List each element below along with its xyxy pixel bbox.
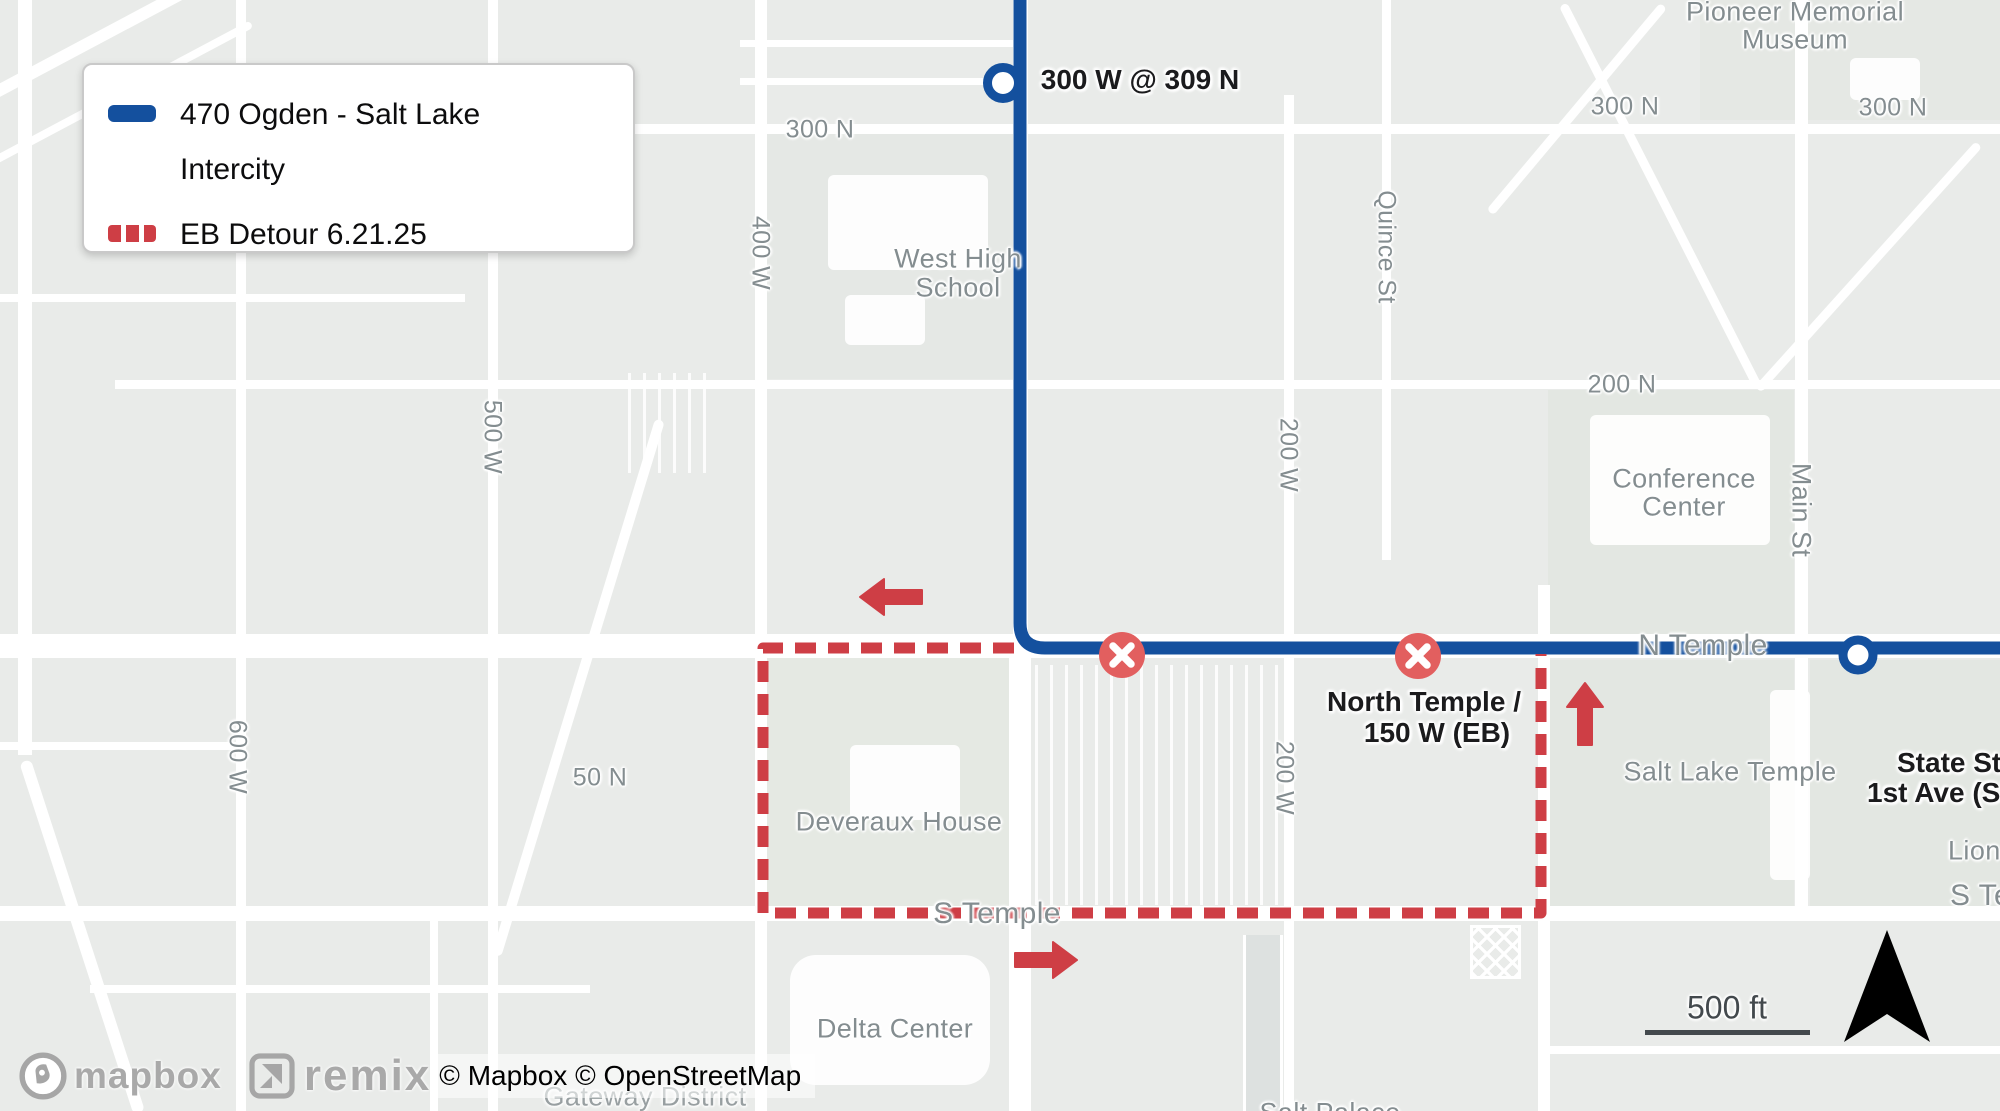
stop-label: State St: [1897, 747, 2000, 779]
stop-label: 1st Ave (SB: [1867, 777, 2000, 809]
mapbox-wordmark[interactable]: mapbox: [74, 1055, 222, 1097]
street-label: N Temple: [1638, 629, 1767, 663]
legend-route-label: 470 Ogden - Salt Lake Intercity: [180, 87, 520, 197]
closed-stop-marker[interactable]: [1395, 633, 1441, 679]
place-label: Deveraux House: [796, 807, 1003, 838]
street-label: S Temple: [933, 897, 1061, 931]
street-label: 400 W: [746, 216, 775, 290]
route-line-470: [1020, 0, 2000, 648]
north-arrow-icon: [1844, 930, 1930, 1042]
remix-logo-icon[interactable]: [248, 1052, 296, 1100]
place-label: Lion H: [1948, 836, 2000, 867]
detour-arrow-north-icon: [1567, 683, 1603, 745]
map-attribution-text[interactable]: © Mapbox © OpenStreetMap: [431, 1054, 815, 1098]
stop-label: 300 W @ 309 N: [1041, 64, 1240, 96]
attribution-bar: mapbox remix © Mapbox © OpenStreetMap: [0, 1046, 815, 1106]
place-label: Salt Lake Temple: [1623, 757, 1836, 788]
detour-line-swatch: [108, 225, 156, 242]
street-label: S Tem: [1950, 879, 2000, 913]
place-label: Conference: [1612, 464, 1756, 495]
street-label: 200 N: [1588, 371, 1657, 400]
street-label: 200 W: [1274, 418, 1303, 492]
place-label: Delta Center: [817, 1014, 973, 1045]
street-label: Quince St: [1372, 190, 1401, 303]
street-label: 300 N: [1591, 93, 1660, 122]
bus-stop-marker[interactable]: [1843, 640, 1873, 670]
legend-route-row: 470 Ogden - Salt Lake Intercity: [108, 87, 633, 197]
detour-arrow-east-icon: [1015, 942, 1077, 978]
street-label: 300 N: [1859, 94, 1928, 123]
bus-stop-marker[interactable]: [988, 68, 1019, 99]
legend-detour-row: EB Detour 6.21.25: [108, 207, 633, 262]
street-label: 50 N: [573, 764, 627, 793]
route-line-swatch: [108, 105, 156, 122]
street-label: 300 N: [786, 116, 855, 145]
mapbox-logo-icon[interactable]: [18, 1051, 68, 1101]
scale-bar: [1645, 1030, 1810, 1035]
street-label: 600 W: [223, 720, 252, 794]
detour-arrow-west-icon: [860, 579, 922, 615]
place-label: Pioneer Memorial: [1686, 0, 1904, 28]
street-label: 200 W: [1270, 741, 1299, 815]
stop-label: 150 W (EB): [1364, 717, 1510, 749]
map-canvas[interactable]: 300 N 400 W West High School 500 W 600 W…: [0, 0, 2000, 1111]
street-label: 500 W: [478, 400, 507, 474]
closed-stop-marker[interactable]: [1099, 632, 1145, 678]
place-label: School: [916, 273, 1001, 304]
stop-label: North Temple /: [1327, 686, 1521, 718]
place-label: Museum: [1742, 25, 1848, 56]
scale-label: 500 ft: [1687, 990, 1767, 1027]
remix-wordmark[interactable]: remix: [304, 1051, 431, 1101]
street-label: Main St: [1786, 463, 1817, 557]
place-label: Salt Palace: [1260, 1098, 1401, 1111]
legend-card: 470 Ogden - Salt Lake Intercity EB Detou…: [82, 63, 635, 253]
legend-detour-label: EB Detour 6.21.25: [180, 207, 520, 262]
place-label: West High: [894, 244, 1022, 275]
place-label: Center: [1642, 492, 1725, 523]
